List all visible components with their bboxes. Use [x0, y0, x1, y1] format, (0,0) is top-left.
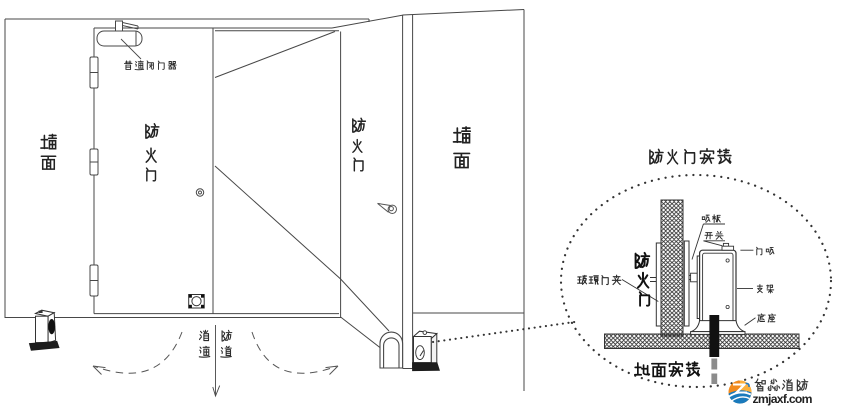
svg-text:zmjaxf.com: zmjaxf.com — [753, 392, 813, 406]
